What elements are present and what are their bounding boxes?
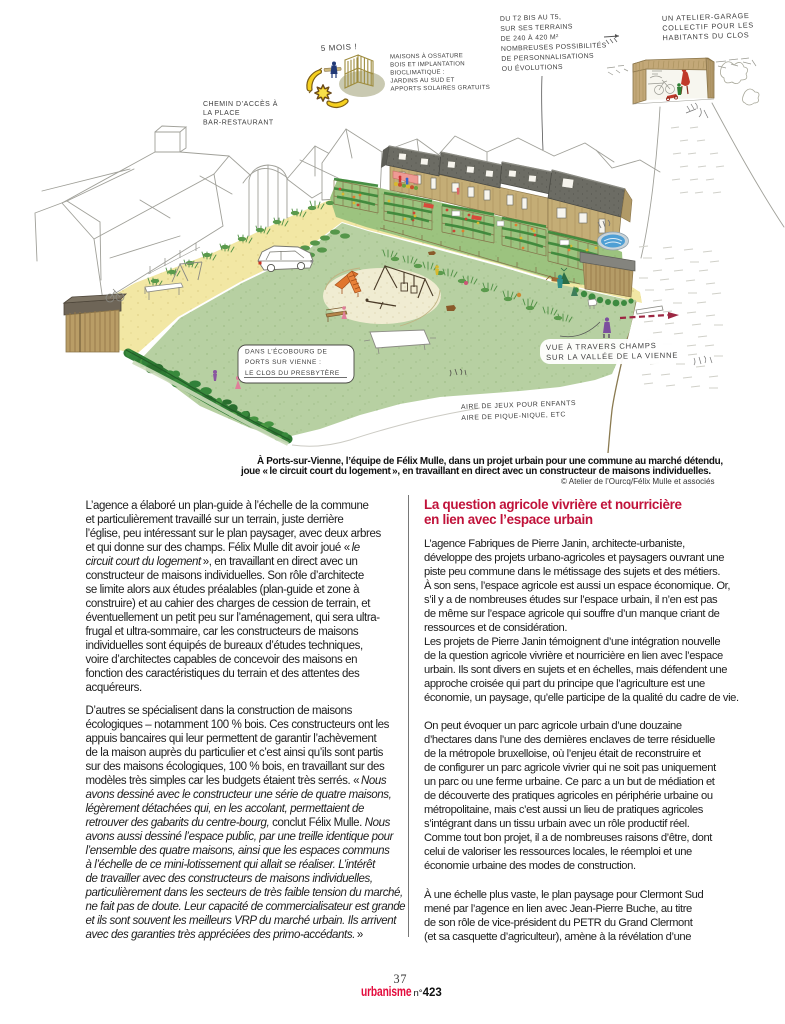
svg-text:BIOCLIMATIQUE :: BIOCLIMATIQUE : xyxy=(390,69,445,77)
svg-text:PORTS SUR VIENNE :: PORTS SUR VIENNE : xyxy=(245,359,321,366)
svg-text:APPORTS SOLAIRES GRATUITS: APPORTS SOLAIRES GRATUITS xyxy=(390,84,490,93)
svg-text:AIRE DE PIQUE-NIQUE, ETC: AIRE DE PIQUE-NIQUE, ETC xyxy=(461,411,566,422)
svg-text:LE CLOS DU PRESBYTÈRE: LE CLOS DU PRESBYTÈRE xyxy=(245,368,340,377)
svg-text:BOIS ET IMPLANTATION: BOIS ET IMPLANTATION xyxy=(390,60,465,68)
svg-text:HABITANTS DU CLOS: HABITANTS DU CLOS xyxy=(662,30,749,42)
svg-text:DE 240 À 420 M²: DE 240 À 420 M² xyxy=(500,32,559,43)
svg-text:LA PLACE: LA PLACE xyxy=(203,110,240,117)
svg-text:AIRE DE JEUX POUR ENFANTS: AIRE DE JEUX POUR ENFANTS xyxy=(461,400,576,411)
svg-text:DU T2 BIS AU T5,: DU T2 BIS AU T5, xyxy=(500,14,561,23)
svg-text:DANS L’ÉCOBOURG DE: DANS L’ÉCOBOURG DE xyxy=(245,347,327,356)
svg-text:BAR-RESTAURANT: BAR-RESTAURANT xyxy=(203,120,274,127)
svg-text:5 MOIS !: 5 MOIS ! xyxy=(321,42,358,53)
svg-text:SUR SES TERRAINS: SUR SES TERRAINS xyxy=(500,23,573,33)
svg-text:JARDINS AU SUD ET: JARDINS AU SUD ET xyxy=(390,77,454,85)
svg-text:MAISONS À OSSATURE: MAISONS À OSSATURE xyxy=(390,52,463,60)
svg-text:DE PERSONNALISATIONS: DE PERSONNALISATIONS xyxy=(501,53,594,63)
svg-text:OU ÉVOLUTIONS: OU ÉVOLUTIONS xyxy=(502,62,564,73)
svg-text:CHEMIN D’ACCÈS À: CHEMIN D’ACCÈS À xyxy=(203,99,278,108)
